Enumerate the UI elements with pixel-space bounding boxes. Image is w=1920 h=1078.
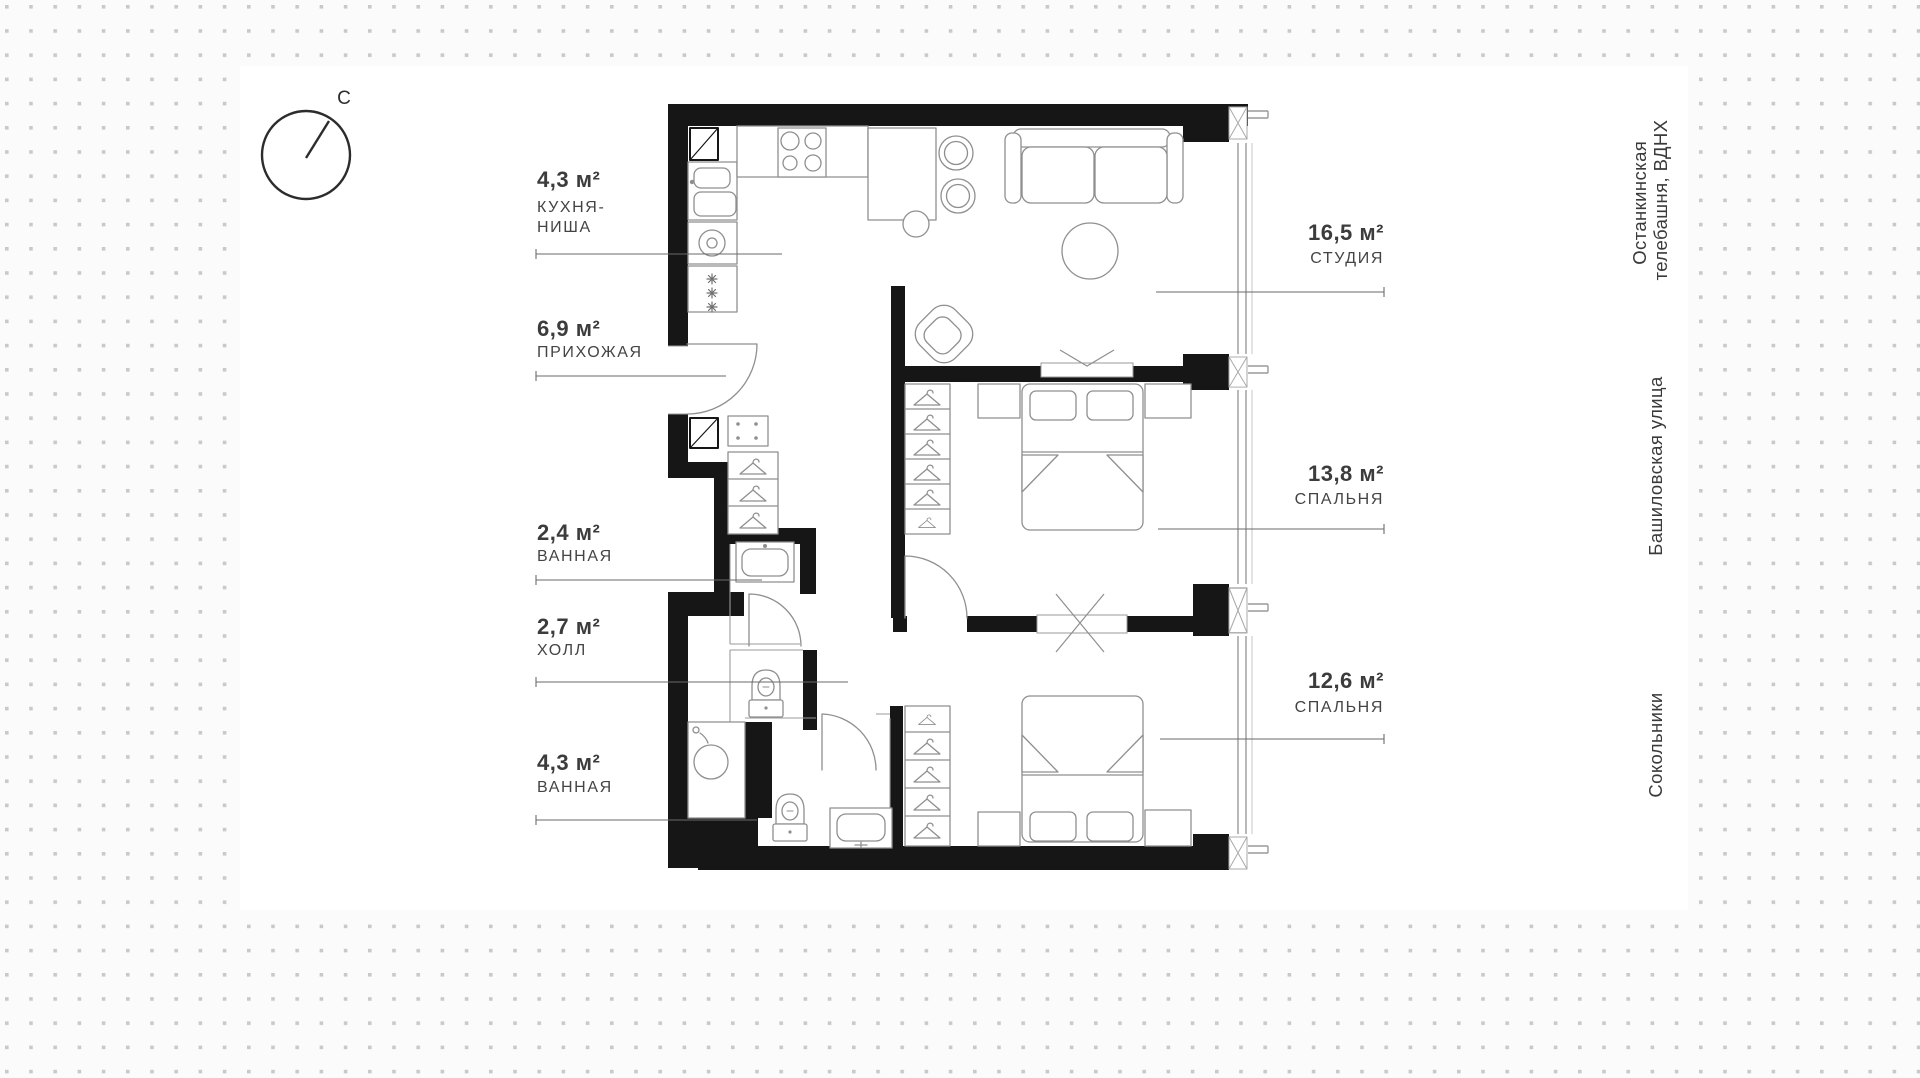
sofa-icon [1005,129,1183,203]
dining-table-icon [868,128,936,220]
landmark-bashilovskaya: Башиловская улица [1645,376,1666,556]
room-name-hallway: ПРИХОЖАЯ [537,344,643,361]
bed-icon [1022,384,1143,530]
kitchen-sink-icon [694,168,730,188]
room-area-hall: 2,7 м² [537,614,600,639]
compass-north-label: С [337,88,351,109]
floor-plan-page: С [0,0,1920,1078]
nightstand-icon [978,812,1020,846]
stove-icon [778,128,826,177]
stool-icon [903,211,929,237]
landmark-ostankino: Останкинская телебашня, ВДНХ [1629,120,1671,281]
room-area-bedroom-2: 12,6 м² [1308,668,1384,693]
room-name-studio: СТУДИЯ [1310,250,1384,267]
room-name-bedroom-1: СПАЛЬНЯ [1295,491,1384,508]
room-name-bathroom-2: ВАННАЯ [537,779,613,796]
wardrobe-icon [905,384,950,534]
wardrobe-icon [905,706,950,846]
room-area-bathroom-2: 4,3 м² [537,750,600,775]
shower-icon [688,722,745,818]
room-name-kitchen-line2: НИША [537,219,592,236]
nightstand-icon [978,384,1020,418]
toilet-icon [749,670,783,717]
nightstand-icon [1145,384,1191,418]
round-table-icon [1062,223,1118,279]
bed-icon [1022,696,1143,842]
room-name-kitchen-line1: КУХНЯ- [537,199,605,216]
bench-icon [728,416,768,446]
room-name-hall: ХОЛЛ [537,642,587,659]
room-area-bedroom-1: 13,8 м² [1308,461,1384,486]
landmark-sokolniki: Сокольники [1645,692,1666,797]
room-name-bedroom-2: СПАЛЬНЯ [1295,699,1384,716]
room-name-bathroom-1: ВАННАЯ [537,548,613,565]
room-area-bathroom-1: 2,4 м² [537,520,600,545]
room-area-kitchen: 4,3 м² [537,167,600,192]
toilet-icon [773,794,807,841]
floor-plan-image: С [0,0,1920,1078]
bathroom-sink-icon [830,808,892,848]
nightstand-icon [1145,810,1191,846]
room-area-hallway: 6,9 м² [537,316,600,341]
room-area-studio: 16,5 м² [1308,220,1384,245]
coat-rack-icon [728,452,778,534]
